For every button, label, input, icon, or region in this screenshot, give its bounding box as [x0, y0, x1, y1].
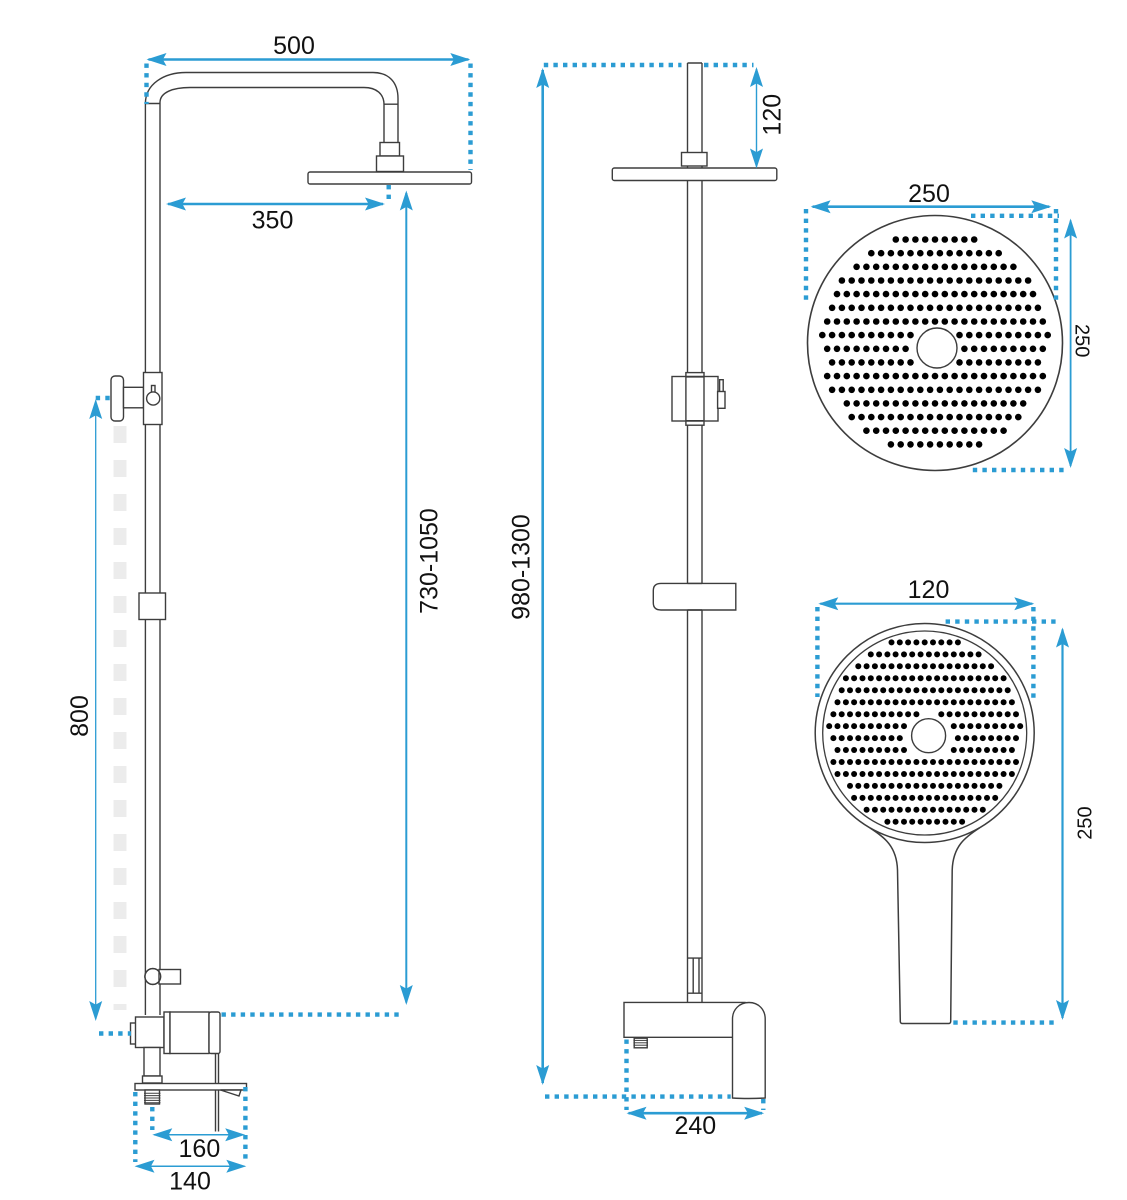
svg-text:160: 160 — [179, 1135, 221, 1163]
svg-text:120: 120 — [758, 94, 786, 136]
svg-text:120: 120 — [908, 576, 950, 604]
svg-text:250: 250 — [1074, 806, 1096, 839]
svg-text:500: 500 — [273, 32, 315, 60]
svg-text:730-1050: 730-1050 — [416, 508, 444, 614]
svg-text:800: 800 — [66, 695, 94, 737]
svg-text:140: 140 — [169, 1168, 211, 1196]
svg-text:250: 250 — [908, 180, 950, 208]
svg-text:250: 250 — [1071, 324, 1093, 357]
svg-text:240: 240 — [674, 1112, 716, 1140]
svg-text:350: 350 — [252, 207, 294, 235]
svg-text:980-1300: 980-1300 — [507, 514, 535, 620]
